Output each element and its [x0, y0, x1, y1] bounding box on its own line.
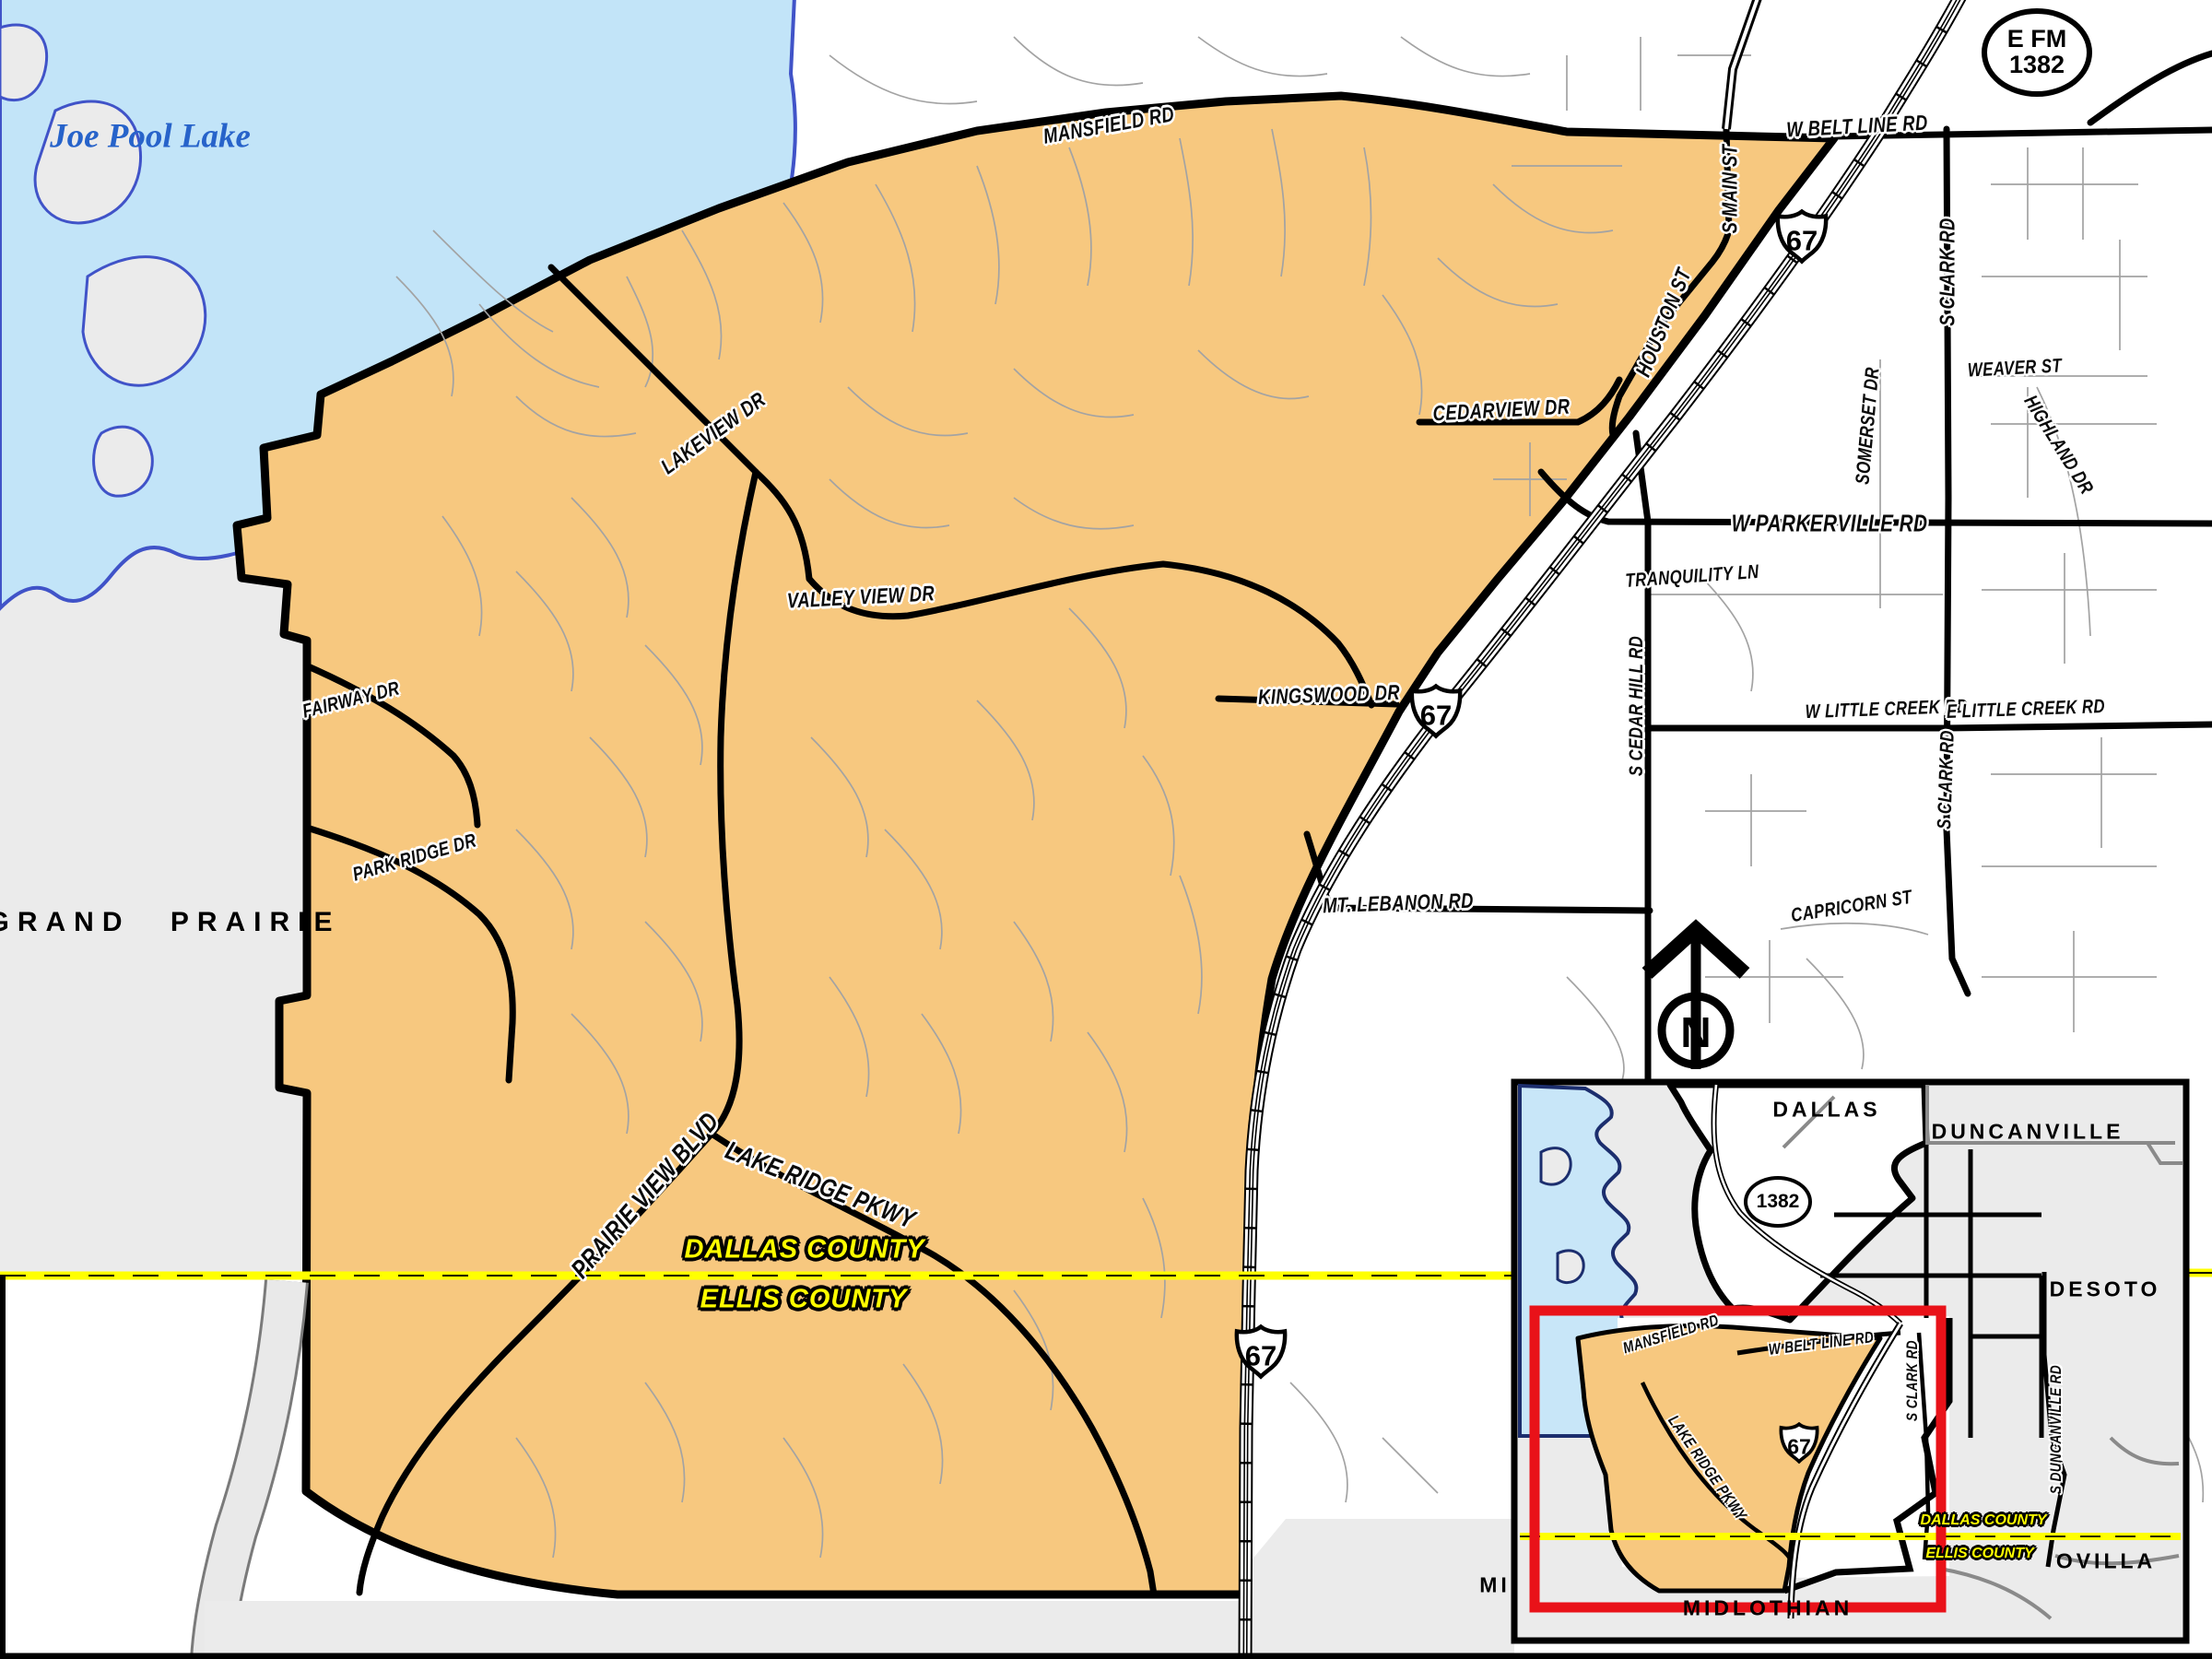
efm-shield-line1: E FM	[2007, 27, 2067, 53]
road-label-s-main-st: S MAIN ST	[1718, 145, 1743, 234]
road-label-mt-lebanon-rd: MT. LEBANON RD	[1323, 888, 1475, 919]
inset-us67-number: 67	[1787, 1435, 1811, 1460]
inset-road-label-s-clark-rd: S CLARK RD	[1903, 1340, 1922, 1421]
city-label-grand-prairie: GRAND PRAIRIE	[0, 907, 341, 938]
lake-name-label: Joe Pool Lake	[50, 117, 251, 157]
inset-city-label-dallas: DALLAS	[1772, 1098, 1880, 1123]
road-label-s-clark-rd-south: S CLARK RD	[1934, 730, 1959, 829]
us67-shield-number: 67	[1245, 1340, 1277, 1373]
inset-county-label-dallas: DALLAS COUNTY	[1921, 1512, 2047, 1529]
inset-county-label-ellis: ELLIS COUNTY	[1925, 1546, 2033, 1562]
map-artwork	[0, 0, 2212, 1659]
inset-city-label-ovilla: OVILLA	[2056, 1549, 2156, 1574]
inset-fm1382-number: 1382	[1757, 1192, 1800, 1211]
inset-us67-shield: 67	[1778, 1422, 1821, 1468]
city-label-midlothian-partial: MI	[1479, 1573, 1511, 1598]
inset-city-label-desoto: DESOTO	[2050, 1277, 2161, 1302]
us67-shield-number: 67	[1420, 700, 1452, 733]
road-label-s-cedar-hill-rd: S CEDAR HILL RD	[1626, 636, 1648, 776]
inset-city-label-midlothian: MIDLOTHIAN	[1683, 1596, 1853, 1621]
county-label-dallas: DALLAS COUNTY	[684, 1235, 924, 1265]
inset-city-label-duncanville: DUNCANVILLE	[1932, 1120, 2124, 1145]
efm-1382-shield: E FM 1382	[1982, 8, 2092, 97]
inset-road-label-s-duncanville-rd: S DUNCANVILLE RD	[2047, 1365, 2065, 1494]
county-label-ellis: ELLIS COUNTY	[700, 1285, 908, 1315]
road-label-w-parkerville-rd: W PARKERVILLE RD	[1732, 510, 1928, 538]
north-arrow-letter: N	[1680, 1007, 1711, 1057]
inset-fm1382-shield: 1382	[1744, 1176, 1812, 1228]
us67-shield-number: 67	[1786, 225, 1818, 258]
road-label-kingswood-dr: KINGSWOOD DR	[1258, 680, 1401, 710]
road-label-s-clark-rd-north: S CLARK RD	[1935, 218, 1960, 325]
us67-shield-north: 67	[1773, 209, 1830, 269]
efm-shield-line2: 1382	[2009, 53, 2065, 78]
us67-shield-middle: 67	[1407, 684, 1465, 744]
map-canvas: Joe Pool Lake MANSFIELD RD W BELT LINE R…	[0, 0, 2212, 1659]
us67-shield-south: 67	[1232, 1324, 1289, 1384]
